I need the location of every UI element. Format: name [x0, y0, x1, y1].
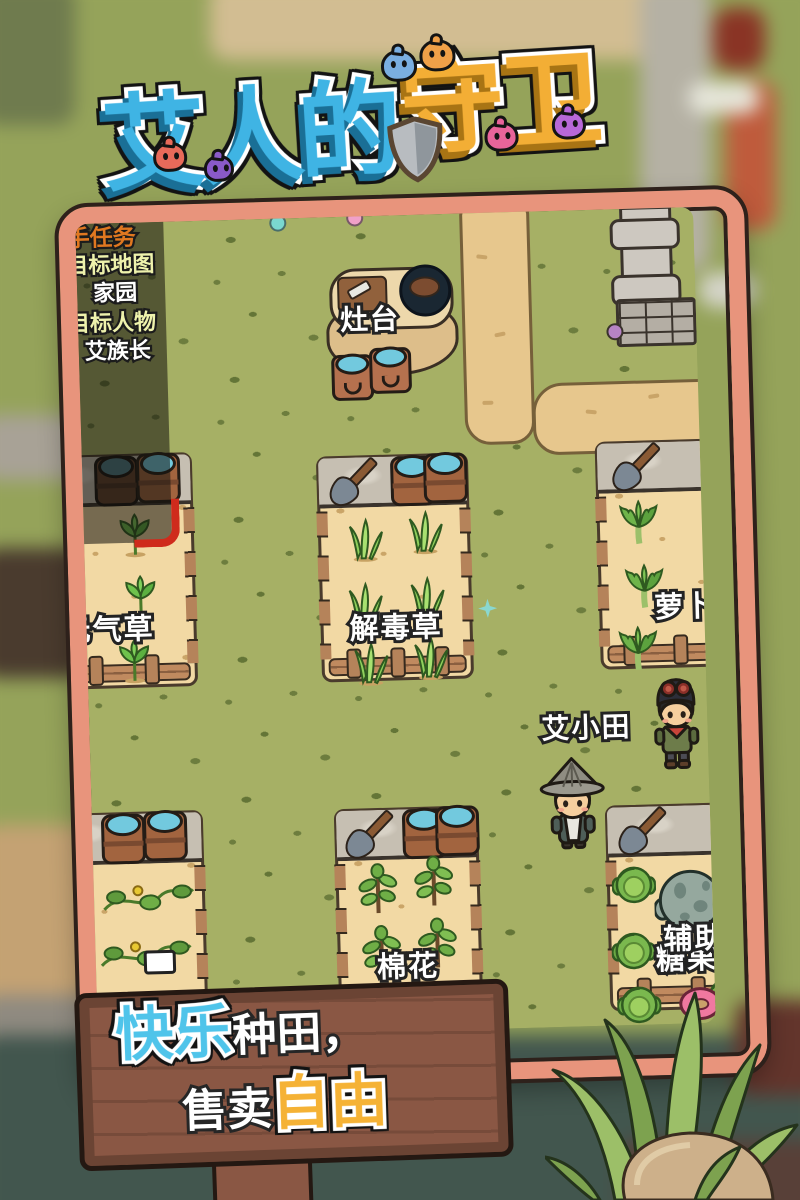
barrel-icon [715, 439, 716, 490]
plot-label-primary: 辅助 [663, 923, 716, 954]
stove[interactable]: 灶台 [325, 268, 461, 408]
sign-line1-rest: 种田 [231, 1006, 323, 1062]
plant-blade [352, 640, 391, 687]
pillar-cap [609, 217, 680, 250]
plant-cabbage [611, 863, 656, 906]
homeland-map[interactable]: 灶台 元气草 [75, 207, 716, 1040]
npc-farmer-character[interactable] [533, 756, 612, 852]
npc-name-label: 艾小田 [541, 713, 632, 744]
barrel-icon [435, 805, 480, 856]
plot-jieducao[interactable]: 解毒草 [316, 452, 474, 682]
pillar-base-bricks [616, 297, 697, 347]
wooden-sign: 快乐种田， 售卖自由 [74, 979, 512, 1200]
plot-toolbar [336, 807, 477, 861]
tutorial-highlight-corner [133, 498, 180, 547]
foreground-plant [545, 975, 800, 1200]
critter-purple [203, 154, 235, 183]
sign-line2-highlight: 自由 [271, 1066, 389, 1138]
game-title-logo: 艾人的 守卫 [98, 42, 626, 223]
plot-label: 元气草 [75, 614, 155, 646]
quest-panel: 新手任务 目标地图 家园 目标人物 艾族长 [75, 220, 172, 544]
dirt-path-vertical [459, 207, 536, 445]
backdrop-white-blob [688, 82, 760, 114]
shovel-icon [599, 789, 681, 871]
plant-blade [347, 516, 386, 563]
path-speckle [482, 401, 493, 405]
plot-toolbar [75, 812, 202, 867]
quest-goal-person-label: 目标人物 [75, 310, 156, 339]
plot-label: 萝卜 [654, 592, 716, 623]
shovel-icon [311, 440, 393, 522]
fence [469, 860, 484, 986]
fence [183, 507, 198, 663]
barrel-icon [101, 814, 146, 865]
sign-line1-comma: ， [321, 1004, 368, 1059]
plant-vine [97, 867, 198, 920]
barrel-icon [423, 452, 468, 503]
stone-pillar [603, 207, 697, 347]
sign-line2-rest: 售卖 [181, 1082, 273, 1138]
flower-cyan [269, 214, 286, 231]
fence [459, 507, 474, 655]
plant-sapling [410, 855, 457, 910]
quest-header: 新手任务 [75, 225, 136, 255]
backdrop-dark-corner [0, 0, 75, 125]
plot-toolbar [597, 440, 716, 494]
plant-cabbage [611, 929, 656, 972]
flower-pink [346, 209, 363, 226]
bucket-icon [331, 354, 374, 401]
fence-post [673, 634, 689, 664]
plot-toolbar [318, 454, 467, 508]
shield-icon [385, 115, 447, 184]
game-screen: 灶台 元气草 [0, 0, 800, 1200]
backdrop-red-square [713, 8, 765, 70]
plot-toolbar [607, 803, 716, 857]
plot-luobo[interactable]: 萝卜 [595, 437, 716, 669]
path-speckle [586, 410, 597, 415]
quest-goal-map-value: 家园 [93, 281, 138, 309]
fence-post [88, 656, 104, 686]
quest-goal-person-value: 艾族长 [84, 338, 151, 366]
plot-label: 棉花 [377, 951, 440, 982]
plot-label: 解毒草 [349, 612, 443, 644]
sign-line2: 售卖自由 [181, 1071, 389, 1136]
title-part-blue: 艾人的 [99, 76, 399, 198]
map-frame: 灶台 元气草 [58, 189, 768, 1092]
fence-post [390, 647, 406, 677]
plant-sapling [354, 862, 401, 917]
plot-label-fragment [144, 950, 177, 975]
plant-radish [615, 625, 662, 672]
npc-goggle-character[interactable] [639, 674, 714, 772]
fence [334, 864, 349, 990]
fence [316, 511, 331, 659]
plant-blade [406, 508, 445, 555]
stove-label: 灶台 [340, 305, 401, 335]
quest-goal-map-label: 目标地图 [75, 252, 155, 281]
sparkle-icon [478, 599, 498, 619]
barrel-icon [143, 810, 188, 861]
bucket-icon [369, 347, 412, 394]
sign-line1-highlight: 快乐 [114, 997, 232, 1069]
plant-radish [615, 499, 662, 546]
sign-line1: 快乐种田， [114, 997, 367, 1064]
fence [595, 497, 610, 647]
